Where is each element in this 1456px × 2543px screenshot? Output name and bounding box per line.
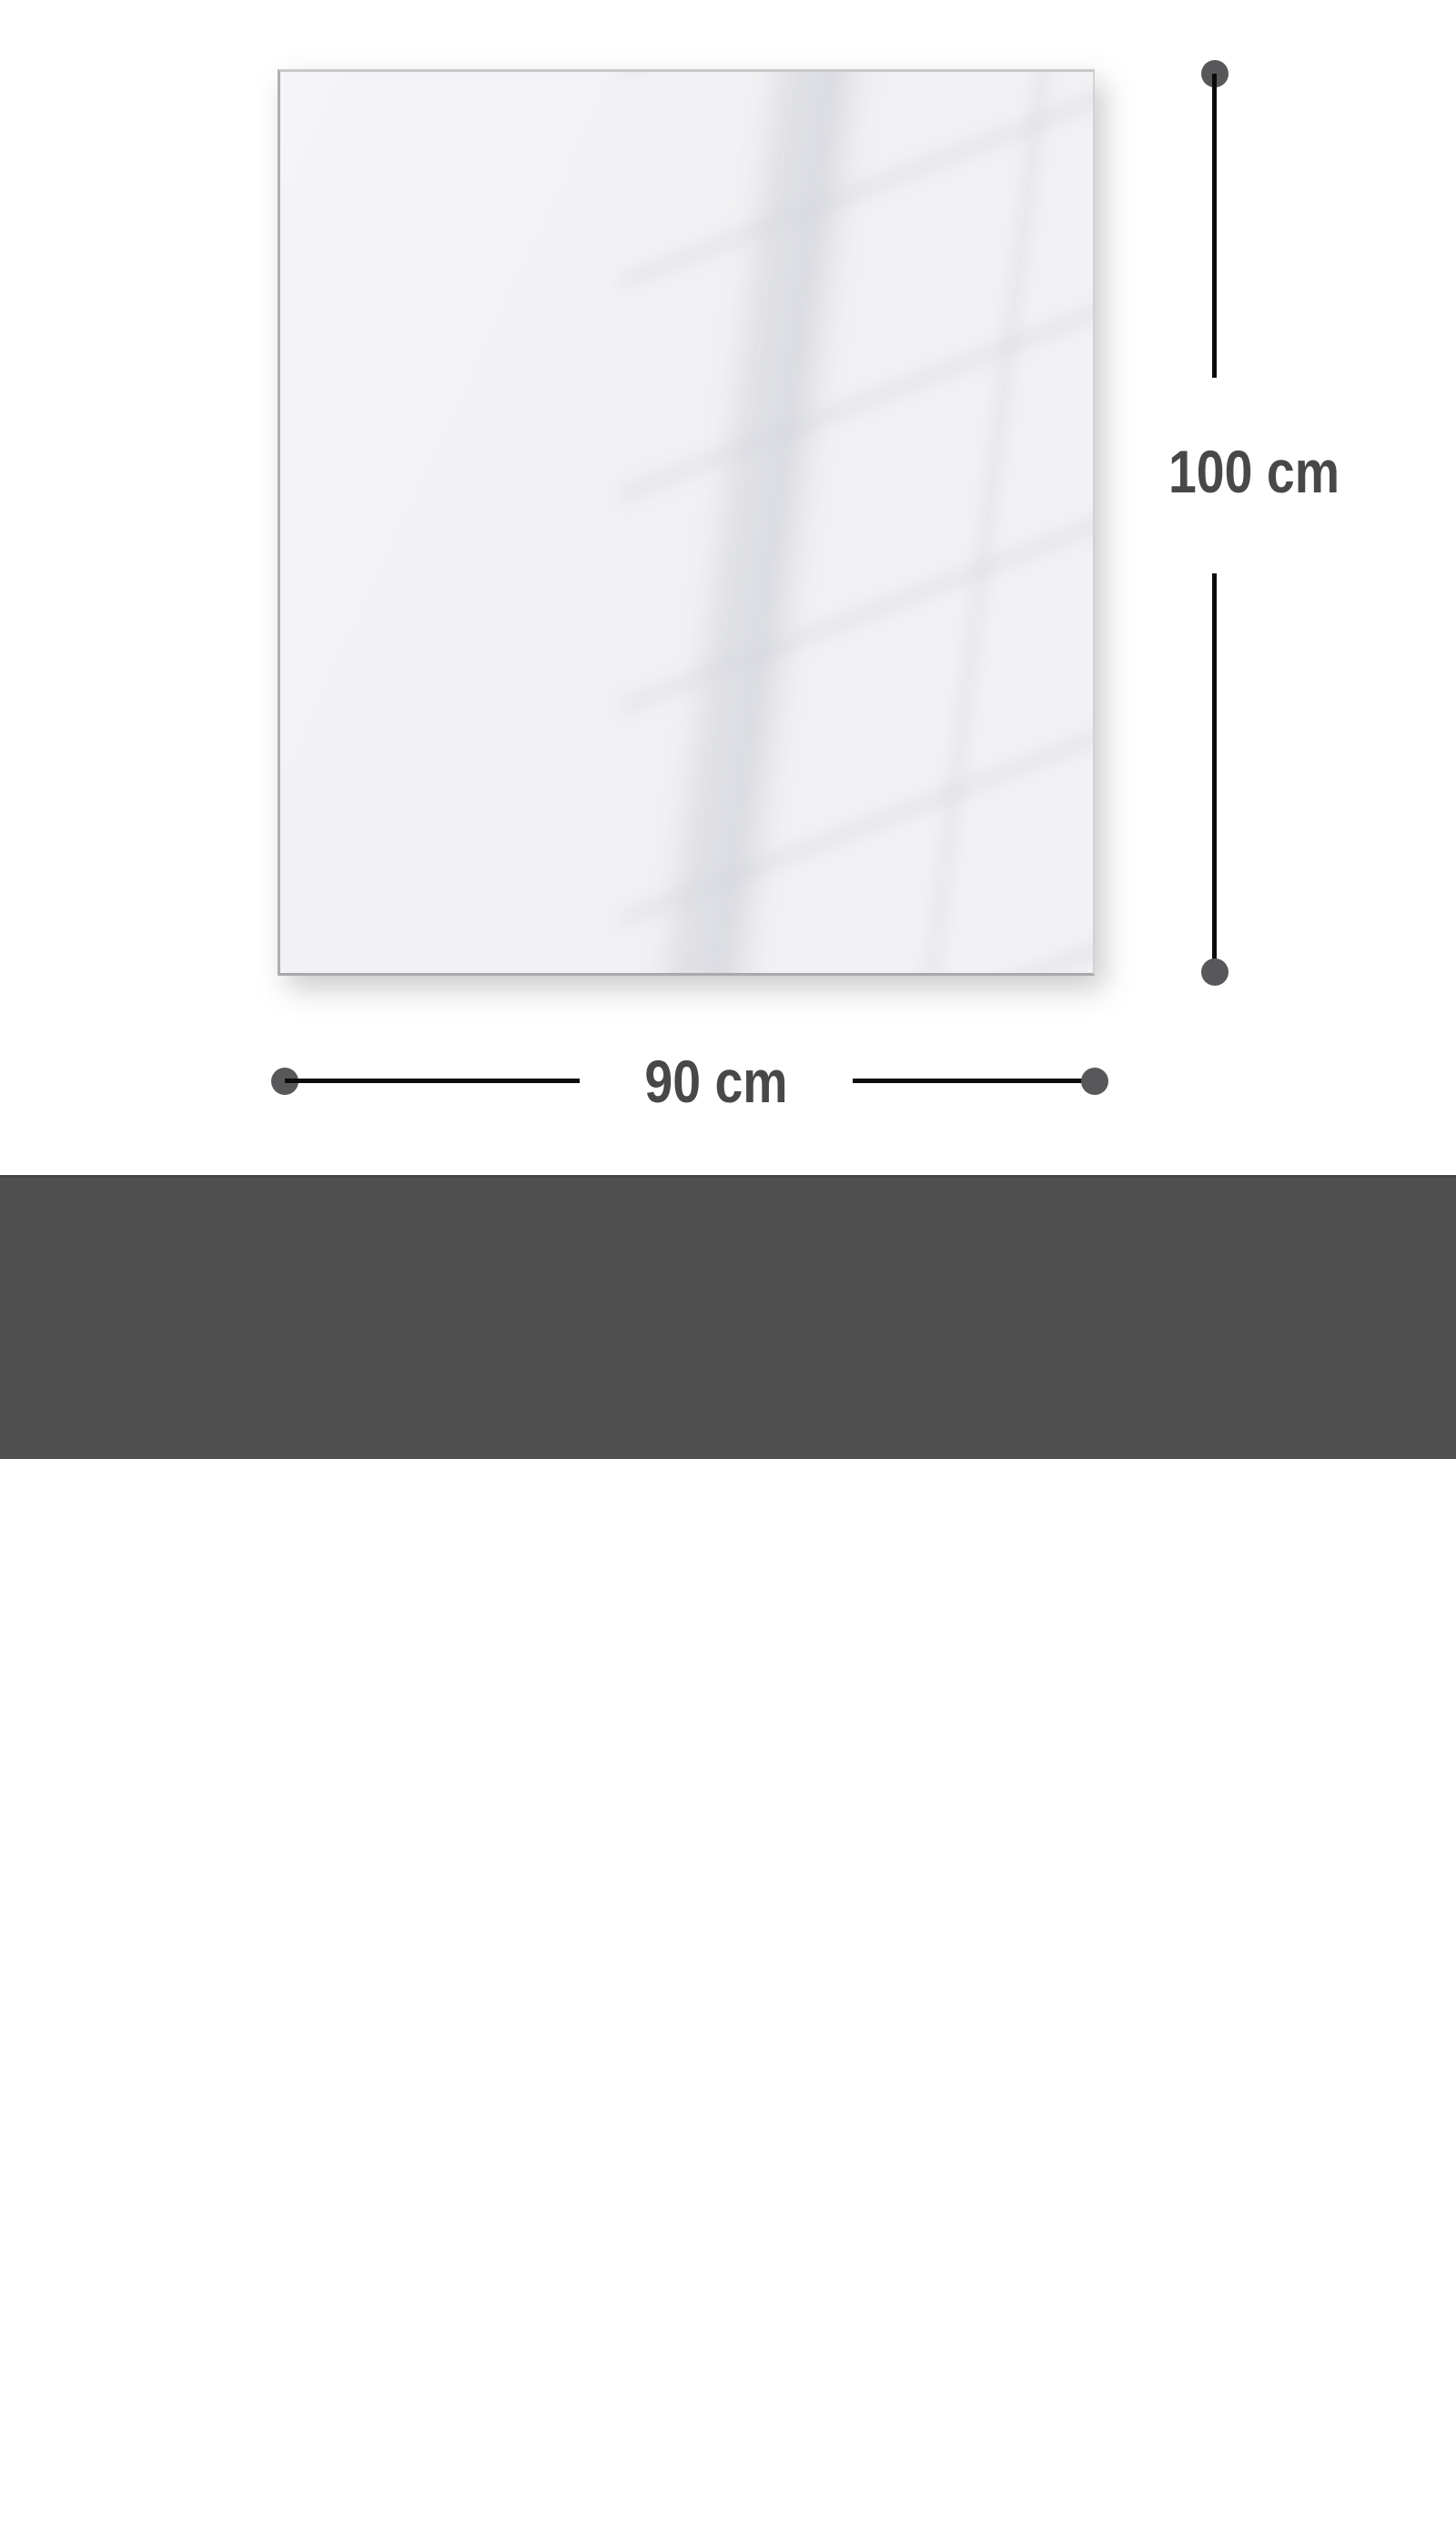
height-dimension-line-lower xyxy=(1212,573,1217,972)
width-dimension-label: 90 cm xyxy=(644,1047,787,1116)
width-dimension-line-left xyxy=(285,1079,580,1083)
height-dimension-bottom-dot xyxy=(1201,958,1228,986)
product-size-diagram: 100 cm 90 cm Gesamtgrösse | Size 90 x 10… xyxy=(0,0,1456,1456)
glass-panel xyxy=(278,69,1095,976)
width-dimension-line-right xyxy=(853,1079,1095,1083)
height-dimension-line-upper xyxy=(1212,74,1217,378)
footer-size-title: Gesamtgrösse | Size xyxy=(135,2412,523,2471)
footer-size-value: 90 x 100 cm xyxy=(135,2474,405,2543)
height-dimension-label: 100 cm xyxy=(1168,437,1340,506)
size-info-footer: Gesamtgrösse | Size 90 x 100 cm xyxy=(0,1175,1456,1459)
width-dimension-right-dot xyxy=(1081,1068,1108,1095)
